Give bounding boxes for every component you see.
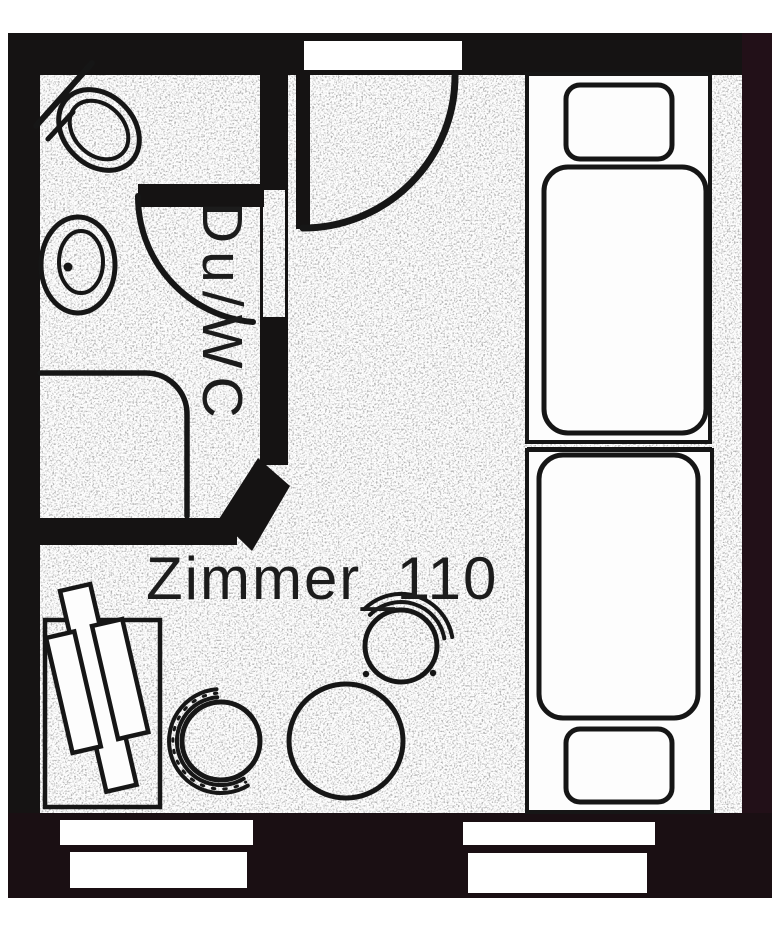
floor-plan-drawing <box>0 0 781 940</box>
bed-divider-line-1 <box>527 441 712 444</box>
bath-wall-upper <box>260 75 288 190</box>
entrance-door-leaf <box>296 70 310 229</box>
chair-upper-leg-dot-right <box>430 670 436 676</box>
window-left-inner-pane <box>70 852 247 888</box>
bath-door-jamb-right <box>285 190 288 317</box>
bed-top <box>527 74 710 442</box>
window-right-outer-pane <box>463 822 655 845</box>
bed-bottom-mattress <box>539 455 698 718</box>
bed-bottom <box>527 450 712 812</box>
bathroom-label: Du/WC <box>193 202 250 426</box>
floor-plan: Zimmer_110 Du/WC <box>0 0 781 940</box>
room-label: Zimmer_110 <box>146 549 498 609</box>
chair-upper-leg-dot-left <box>363 671 369 677</box>
bath-wall-bottom <box>40 518 237 545</box>
window-left-outer-pane <box>60 820 253 845</box>
window-right-inner-pane <box>468 853 647 893</box>
sink-drain <box>64 263 73 272</box>
wall-left <box>8 33 40 898</box>
bed-top-mattress <box>544 167 706 433</box>
wall-right <box>742 33 772 898</box>
bed-bottom-pillow <box>566 729 672 802</box>
bath-wall-lower <box>260 317 288 465</box>
bath-door-jamb-left <box>260 190 263 317</box>
bed-top-pillow <box>566 85 672 159</box>
entrance-door-opening <box>304 41 462 70</box>
